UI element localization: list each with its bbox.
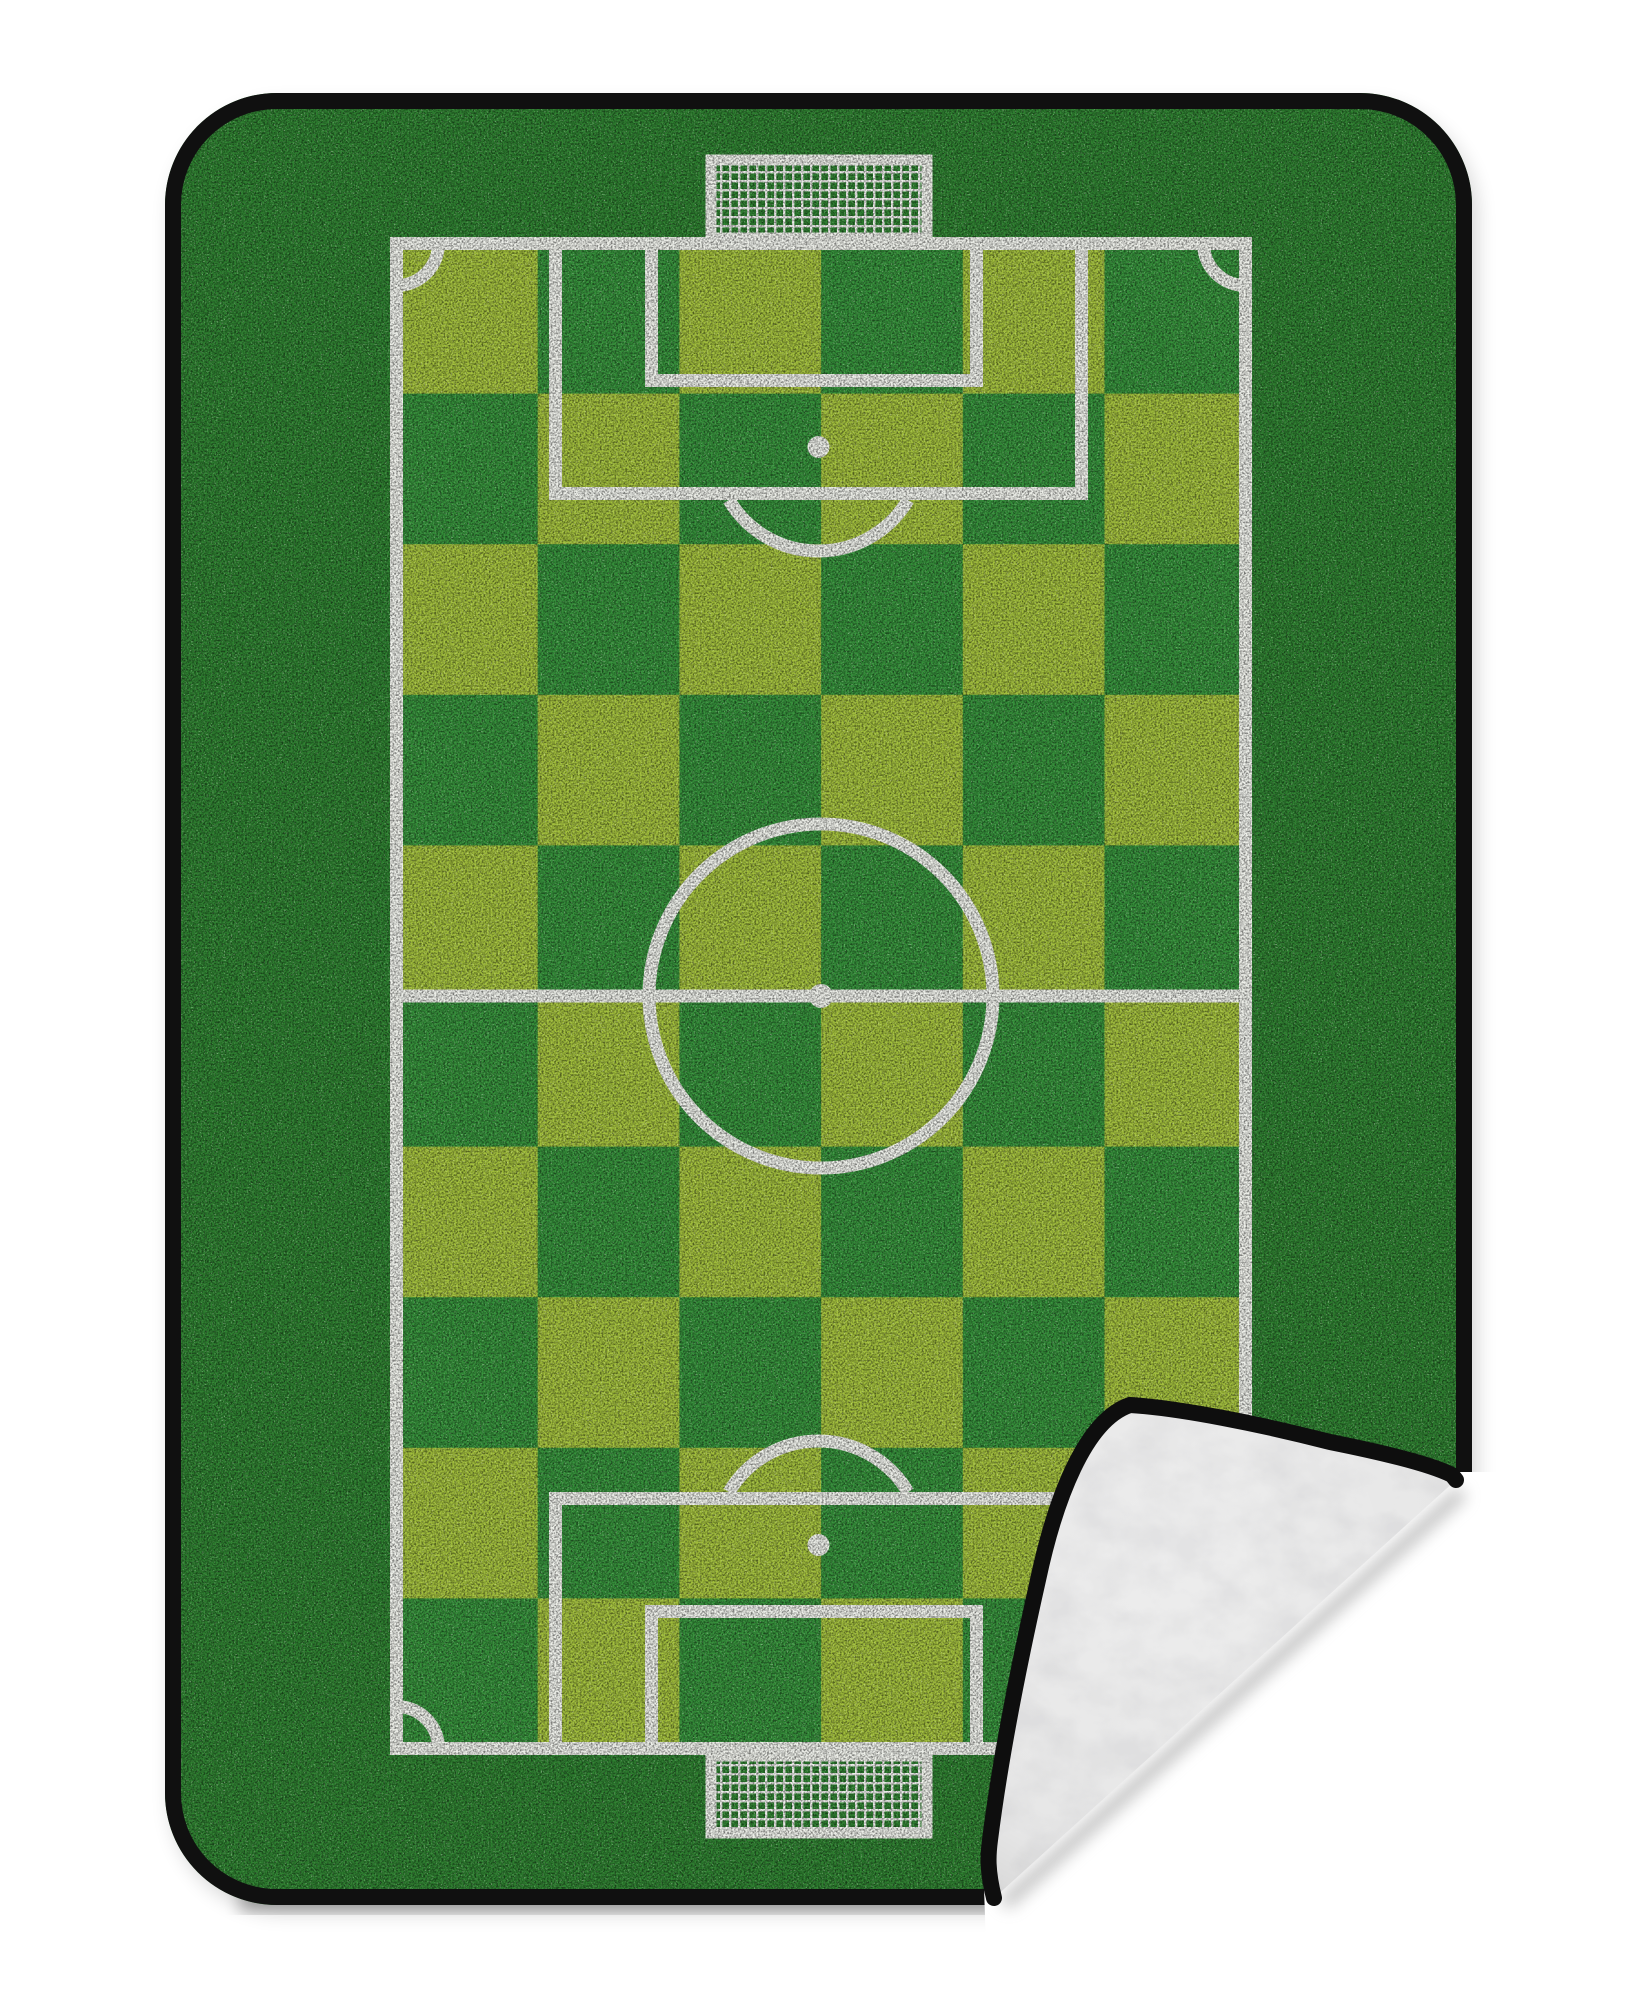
product-photo	[0, 0, 1635, 2000]
folded-corner	[984, 1405, 1600, 1998]
soccer-field-blanket-image	[0, 0, 1635, 2000]
